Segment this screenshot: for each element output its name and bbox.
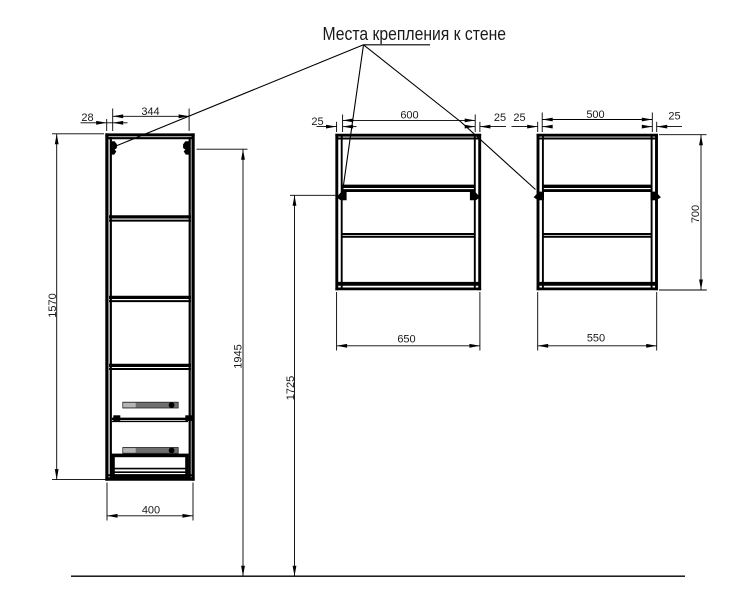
svg-text:25: 25 — [311, 116, 323, 128]
svg-text:550: 550 — [587, 333, 605, 345]
svg-text:1570: 1570 — [47, 293, 59, 317]
svg-text:25: 25 — [494, 112, 506, 124]
svg-text:1725: 1725 — [285, 376, 297, 400]
svg-text:25: 25 — [668, 110, 680, 122]
svg-text:1945: 1945 — [233, 344, 245, 368]
svg-text:Места крепления к стене: Места крепления к стене — [323, 24, 507, 44]
svg-text:344: 344 — [141, 106, 159, 118]
svg-text:28: 28 — [81, 112, 93, 124]
svg-text:600: 600 — [400, 110, 418, 122]
svg-text:25: 25 — [513, 112, 525, 124]
svg-text:400: 400 — [142, 505, 160, 517]
svg-text:650: 650 — [397, 334, 415, 346]
svg-text:700: 700 — [690, 205, 702, 223]
svg-text:500: 500 — [586, 109, 604, 121]
